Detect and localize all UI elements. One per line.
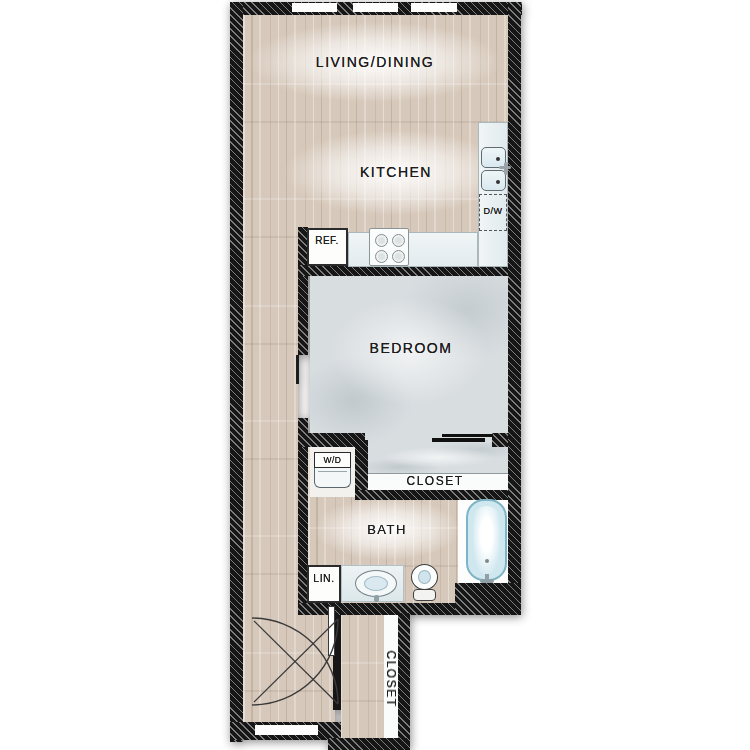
- bath-door-leaf: [328, 606, 335, 656]
- label-bedroom: BEDROOM: [370, 340, 453, 356]
- tub-drain-icon: [485, 559, 489, 563]
- window-top-2: [353, 3, 398, 12]
- wall-wd-closet-divider: [355, 440, 368, 497]
- tub-interior: [473, 506, 500, 574]
- burner-icon: [392, 250, 405, 263]
- floor-entry: [243, 610, 335, 730]
- label-entry-closet: CLOSET: [384, 650, 398, 707]
- wall-entry-closet-bottom: [328, 738, 410, 750]
- floor-bedroom: [310, 276, 508, 443]
- label-living-dining: LIVING/DINING: [316, 54, 434, 70]
- kitchen-counter-bottom: [348, 232, 478, 267]
- wall-bedroom-bottom-right: [492, 433, 508, 447]
- wall-left: [230, 2, 243, 742]
- linen-closet: [307, 565, 341, 603]
- kitchen-faucet-icon: [504, 162, 508, 175]
- burner-icon: [375, 234, 388, 247]
- toilet-bowl-icon: [418, 570, 431, 584]
- wall-right: [508, 2, 521, 615]
- wall-bedroom-left-upper: [298, 276, 308, 355]
- label-washer-dryer: W/D: [323, 455, 341, 465]
- vanity-faucet-icon: [374, 595, 379, 602]
- bedroom-door-leaf: [296, 355, 299, 384]
- wall-bath-bottom: [298, 603, 455, 615]
- wall-bath-corner-step: [455, 583, 521, 615]
- label-bath: BATH: [367, 522, 407, 537]
- sink-drain-icon: [496, 180, 500, 184]
- entry-door-opening: [255, 725, 318, 735]
- closet-sliding-door-1: [432, 438, 485, 442]
- burner-icon: [392, 234, 405, 247]
- floor-bedroom-closet: [368, 443, 508, 475]
- stove: [369, 228, 409, 266]
- label-bedroom-closet: CLOSET: [406, 474, 463, 488]
- sink-drain-icon: [496, 157, 500, 161]
- bathtub: [466, 499, 507, 581]
- window-top-3: [411, 3, 457, 12]
- window-top-1: [292, 3, 337, 12]
- burner-icon: [375, 250, 388, 263]
- tub-faucet-icon: [480, 579, 494, 583]
- vanity-sink: [355, 570, 397, 597]
- sink-bowl-icon: [364, 576, 388, 591]
- kitchen-sink-basin-1: [481, 147, 506, 168]
- toilet-tank: [413, 589, 436, 601]
- label-linen: LIN.: [313, 572, 334, 584]
- washer-dryer-unit: [314, 468, 351, 488]
- label-kitchen: KITCHEN: [360, 164, 432, 180]
- wall-entry-closet-right: [398, 613, 410, 750]
- floor-plan-page: LIVING/DINING KITCHEN D/W REF. BEDROOM W…: [0, 0, 750, 750]
- label-dishwasher: D/W: [484, 206, 503, 216]
- toilet: [411, 564, 438, 590]
- kitchen-sink-basin-2: [481, 170, 506, 191]
- floor-plan: LIVING/DINING KITCHEN D/W REF. BEDROOM W…: [0, 0, 750, 750]
- closet-sliding-door-2: [442, 434, 493, 438]
- label-refrigerator: REF.: [315, 235, 339, 246]
